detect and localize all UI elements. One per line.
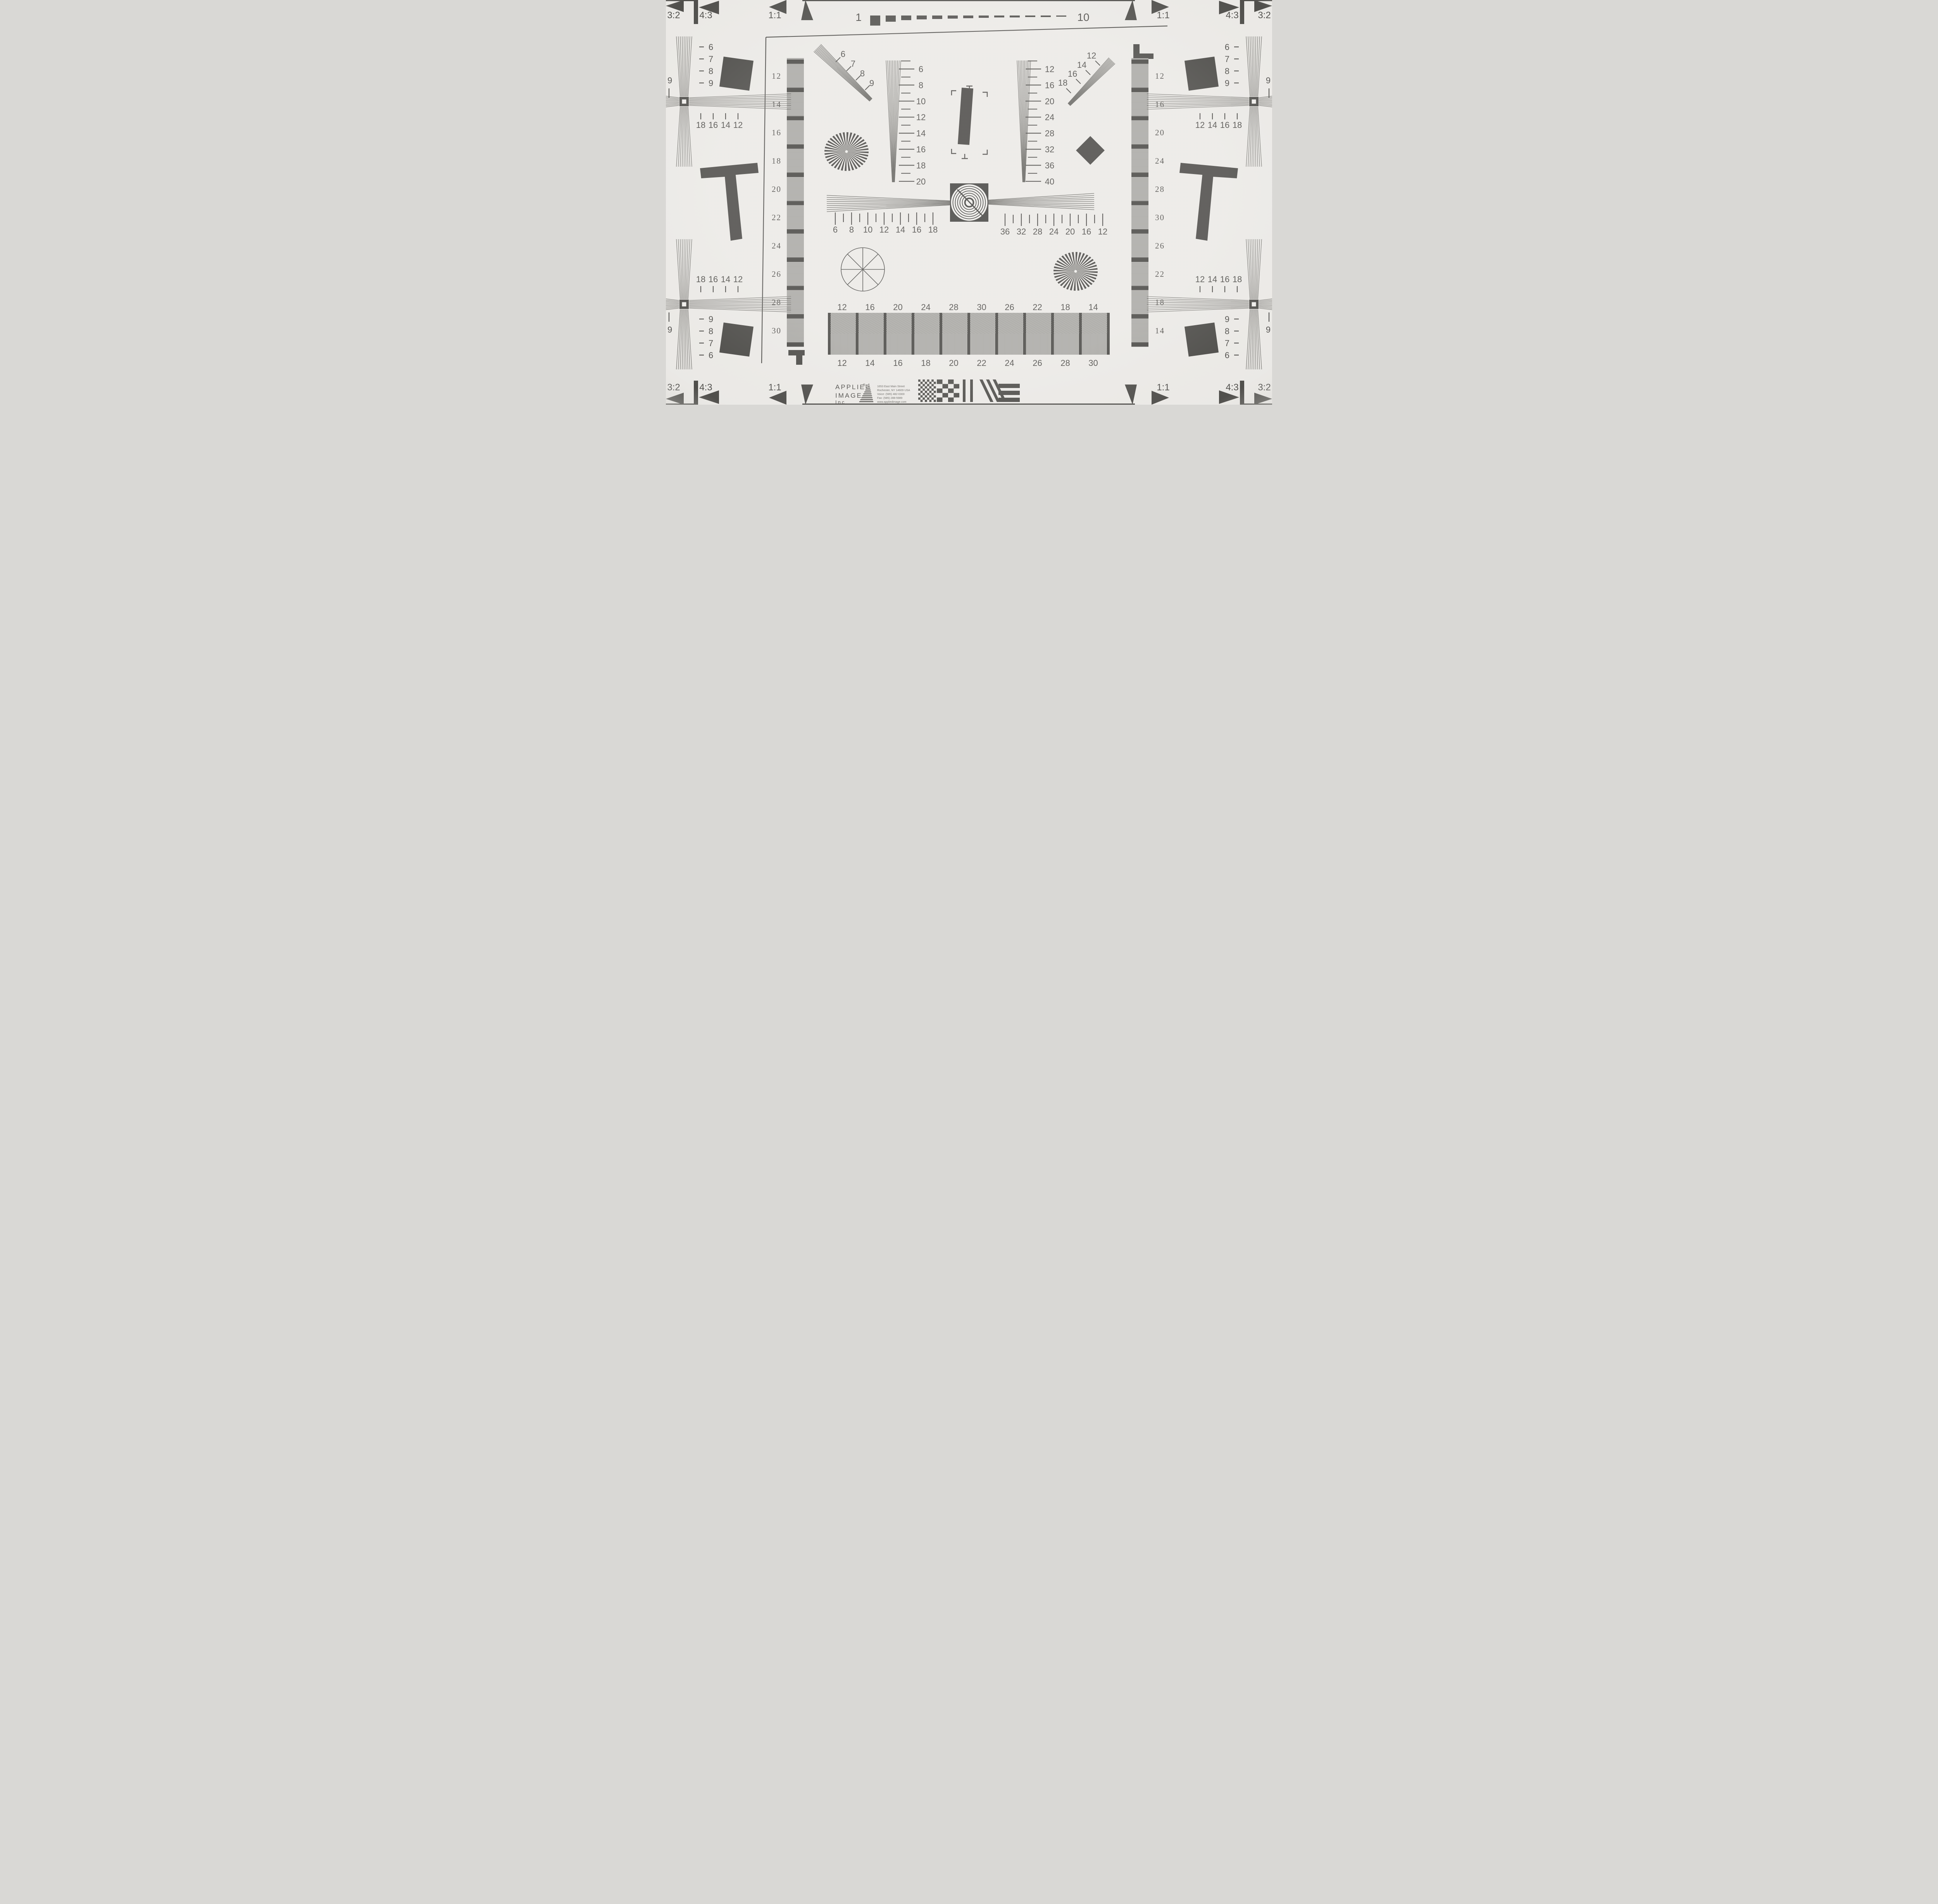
gray-bar-separator bbox=[1131, 343, 1148, 347]
flag-mark bbox=[1133, 44, 1140, 59]
gray-bar-label: 16 bbox=[1155, 100, 1165, 109]
fine-checkerboard-cell bbox=[929, 395, 932, 398]
bottom-bar-separator bbox=[995, 313, 998, 355]
fine-checkerboard-cell bbox=[929, 391, 932, 393]
cross-wedge-label: 9 bbox=[1225, 78, 1229, 88]
top-scale-block bbox=[932, 16, 942, 19]
aspect-ratio-label: 3:2 bbox=[667, 10, 680, 21]
fine-checkerboard-cell bbox=[925, 391, 927, 393]
coarse-checkerboard-cell bbox=[937, 388, 943, 393]
fine-checkerboard-cell bbox=[929, 400, 932, 402]
fine-checkerboard-cell bbox=[918, 384, 921, 386]
top-scale-block bbox=[1010, 16, 1020, 17]
bottom-bar-separator bbox=[967, 313, 970, 355]
cross-tick-label: 16 bbox=[709, 274, 718, 284]
bottom-bar-bottom-label: 24 bbox=[1005, 358, 1014, 368]
center-scale-label: 12 bbox=[1098, 227, 1107, 236]
diagonal-wedge-label: 9 bbox=[869, 78, 874, 88]
top-edge-line bbox=[802, 0, 1135, 1]
fine-checkerboard-cell bbox=[925, 395, 927, 398]
gray-bar-label: 26 bbox=[772, 269, 781, 279]
aspect-ratio-label: 3:2 bbox=[667, 382, 680, 393]
gray-bar-separator bbox=[1131, 229, 1148, 234]
top-edge-line bbox=[1243, 0, 1272, 1]
coarse-checkerboard-cell bbox=[954, 384, 960, 389]
gray-bar-label: 22 bbox=[1155, 269, 1165, 279]
ruler-label: 36 bbox=[1045, 160, 1054, 170]
diagonal-wedge-label: 14 bbox=[1077, 60, 1086, 70]
cross-tick-label: 12 bbox=[733, 120, 743, 130]
bottom-edge-line bbox=[666, 404, 694, 405]
address-line: Rochester, NY 14609 USA bbox=[877, 388, 910, 392]
top-scale-start-label: 1 bbox=[855, 11, 862, 23]
ruler-label: 28 bbox=[1045, 129, 1054, 138]
fine-checkerboard-cell bbox=[918, 379, 921, 382]
aspect-ratio-label: 1:1 bbox=[768, 10, 781, 21]
gray-bar-separator bbox=[787, 229, 804, 234]
bottom-bar-bottom-label: 18 bbox=[921, 358, 930, 368]
horizontal-bar-pattern bbox=[998, 384, 1020, 388]
gray-bar-separator bbox=[787, 88, 804, 92]
diagonal-wedge-label: 12 bbox=[1087, 51, 1096, 60]
gray-bar-separator bbox=[1131, 258, 1148, 262]
fine-checkerboard-cell bbox=[918, 393, 921, 395]
gray-bar-label: 12 bbox=[1155, 71, 1165, 81]
coarse-checkerboard-cell bbox=[943, 384, 948, 389]
bottom-bar-bottom-label: 16 bbox=[893, 358, 902, 368]
coarse-checkerboard-cell bbox=[937, 379, 943, 384]
coarse-checkerboard-cell bbox=[948, 397, 954, 402]
center-scale-label: 14 bbox=[896, 225, 905, 235]
aspect-ratio-label: 4:3 bbox=[699, 10, 712, 21]
fine-checkerboard-cell bbox=[927, 379, 929, 382]
flag-mark bbox=[796, 350, 802, 365]
bottom-bar-separator bbox=[912, 313, 914, 355]
top-scale-block bbox=[886, 16, 896, 22]
bottom-bar-separator bbox=[1107, 313, 1110, 355]
fine-checkerboard-cell bbox=[925, 382, 927, 384]
fine-checkerboard-cell bbox=[934, 386, 936, 388]
fine-checkerboard-cell bbox=[931, 388, 934, 391]
gray-bar-label: 28 bbox=[1155, 185, 1165, 194]
center-scale-label: 20 bbox=[1066, 227, 1075, 236]
top-scale-block bbox=[901, 16, 911, 20]
bottom-bar-top-label: 26 bbox=[1005, 302, 1014, 312]
bottom-bar-top-label: 18 bbox=[1060, 302, 1070, 312]
black-square bbox=[1185, 57, 1219, 91]
cross-wedge-label: 7 bbox=[709, 54, 713, 64]
coarse-checkerboard-cell bbox=[954, 393, 960, 398]
logo-word-image: IMAGE bbox=[835, 392, 862, 399]
fine-checkerboard-cell bbox=[921, 395, 923, 398]
corner-bar-icon bbox=[1240, 0, 1244, 24]
center-scale-label: 16 bbox=[912, 225, 921, 235]
registered-icon: ® bbox=[863, 383, 866, 387]
gray-bar-label: 24 bbox=[1155, 156, 1165, 166]
bottom-bar-bottom-label: 30 bbox=[1088, 358, 1098, 368]
corner-bar-icon bbox=[694, 0, 698, 24]
cross-wedge-label: 9 bbox=[709, 78, 713, 88]
aspect-ratio-label: 1:1 bbox=[768, 382, 781, 393]
cross-wedge-label: 6 bbox=[1225, 350, 1229, 360]
horizontal-bar-pattern bbox=[998, 398, 1020, 402]
ruler-label: 20 bbox=[1045, 97, 1054, 106]
gray-bar-label: 12 bbox=[772, 71, 781, 81]
bottom-bar-bottom-label: 12 bbox=[837, 358, 847, 368]
bottom-bar-bottom-label: 22 bbox=[977, 358, 986, 368]
bottom-edge-line bbox=[1243, 404, 1272, 405]
fine-checkerboard-cell bbox=[934, 391, 936, 393]
gray-bar-label: 24 bbox=[772, 241, 781, 250]
aspect-ratio-label: 3:2 bbox=[1258, 382, 1271, 393]
diagonal-wedge-label: 6 bbox=[841, 49, 845, 59]
fine-checkerboard-cell bbox=[925, 400, 927, 402]
address-line: Voice: (585) 482-0300 bbox=[877, 392, 905, 396]
fine-checkerboard-cell bbox=[921, 400, 923, 402]
center-bullseye bbox=[950, 183, 988, 222]
gray-bar-label: 20 bbox=[772, 185, 781, 194]
ruler-label: 24 bbox=[1045, 112, 1054, 122]
center-scale-label: 16 bbox=[1082, 227, 1091, 236]
coarse-checkerboard-cell bbox=[948, 388, 954, 393]
bottom-bar-top-label: 24 bbox=[921, 302, 930, 312]
top-scale-block bbox=[1056, 16, 1066, 17]
bottom-bar-separator bbox=[884, 313, 886, 355]
gray-bar-separator bbox=[787, 60, 804, 64]
diagonal-wedge-label: 18 bbox=[1058, 78, 1067, 88]
cross-center-window bbox=[682, 302, 686, 307]
cross-wedge-label: 8 bbox=[1225, 326, 1229, 336]
black-square bbox=[719, 323, 753, 357]
gray-bar-separator bbox=[787, 314, 804, 319]
corner-bar-icon bbox=[1240, 381, 1244, 405]
cross-wedge-label: 9 bbox=[709, 314, 713, 324]
cross-center-window bbox=[1252, 100, 1256, 104]
cross-tick-label: 16 bbox=[709, 120, 718, 130]
ruler-label: 10 bbox=[916, 97, 926, 106]
horizontal-bar-pattern bbox=[998, 391, 1020, 395]
gray-bar-separator bbox=[787, 116, 804, 121]
fine-checkerboard-cell bbox=[921, 391, 923, 393]
gray-bar-separator bbox=[1131, 314, 1148, 319]
fine-checkerboard-cell bbox=[927, 384, 929, 386]
top-scale-block bbox=[870, 16, 880, 26]
bottom-bar-top-label: 28 bbox=[949, 302, 958, 312]
gray-bar-separator bbox=[787, 173, 804, 177]
address-line: www.appliedimage.com bbox=[877, 400, 907, 404]
page: APPLIED ® IMAGE Inc 1653 East Main Stree… bbox=[666, 0, 1272, 405]
center-scale-label: 8 bbox=[849, 225, 854, 235]
edge-cut-label: 9 bbox=[667, 325, 672, 335]
gray-bar-label: 30 bbox=[1155, 213, 1165, 222]
bottom-bar-separator bbox=[1023, 313, 1026, 355]
center-scale-label: 28 bbox=[1033, 227, 1042, 236]
center-scale-label: 6 bbox=[833, 225, 838, 235]
fine-checkerboard-cell bbox=[921, 382, 923, 384]
gray-bar-separator bbox=[1131, 88, 1148, 92]
gray-bar-separator bbox=[1131, 201, 1148, 205]
coarse-checkerboard-cell bbox=[937, 397, 943, 402]
bottom-bar-bottom-label: 26 bbox=[1033, 358, 1042, 368]
fine-checkerboard-cell bbox=[925, 386, 927, 388]
gray-bar-separator bbox=[1131, 286, 1148, 290]
gray-bar-separator bbox=[1131, 145, 1148, 149]
ruler-label: 20 bbox=[916, 177, 926, 186]
gray-bar-label: 18 bbox=[772, 156, 781, 166]
top-scale-end-label: 10 bbox=[1077, 11, 1089, 23]
cross-tick-label: 14 bbox=[721, 274, 730, 284]
fine-checkerboard-cell bbox=[918, 388, 921, 391]
center-scale-label: 10 bbox=[863, 225, 872, 235]
cross-wedge-label: 6 bbox=[709, 42, 713, 52]
gray-bar-label: 14 bbox=[772, 100, 781, 109]
center-scale-label: 36 bbox=[1000, 227, 1010, 236]
cross-tick-label: 14 bbox=[721, 120, 730, 130]
bottom-bar-bottom-label: 14 bbox=[865, 358, 874, 368]
bottom-bar-separator bbox=[940, 313, 942, 355]
address-line: Fax: (585) 288-5989 bbox=[877, 396, 902, 400]
aspect-ratio-label: 3:2 bbox=[1258, 10, 1271, 21]
bottom-bar-bottom-label: 28 bbox=[1060, 358, 1070, 368]
cross-wedge-label: 9 bbox=[1225, 314, 1229, 324]
aspect-ratio-label: 1:1 bbox=[1157, 382, 1169, 393]
diagonal-wedge-label: 16 bbox=[1068, 69, 1077, 79]
gray-bar-label: 20 bbox=[1155, 128, 1165, 137]
gray-bar-separator bbox=[787, 286, 804, 290]
gray-bar-label: 14 bbox=[1155, 326, 1165, 335]
fine-checkerboard-cell bbox=[927, 393, 929, 395]
fine-checkerboard-cell bbox=[931, 393, 934, 395]
ruler-label: 32 bbox=[1045, 145, 1054, 154]
fine-checkerboard-cell bbox=[929, 386, 932, 388]
fine-checkerboard-cell bbox=[929, 382, 932, 384]
cross-tick-label: 12 bbox=[1195, 274, 1205, 284]
top-scale-block bbox=[948, 16, 958, 19]
bottom-bar-bottom-label: 20 bbox=[949, 358, 958, 368]
gray-bar-separator bbox=[787, 145, 804, 149]
bottom-bar-top-label: 12 bbox=[837, 302, 847, 312]
gray-bar-separator bbox=[1131, 173, 1148, 177]
cross-center-window bbox=[682, 100, 686, 104]
gray-bar-separator bbox=[787, 258, 804, 262]
cross-tick-label: 16 bbox=[1220, 274, 1229, 284]
bottom-bar-separator bbox=[828, 313, 831, 355]
ruler-label: 16 bbox=[916, 145, 926, 154]
fine-checkerboard-cell bbox=[934, 395, 936, 398]
aspect-ratio-label: 4:3 bbox=[1226, 382, 1238, 393]
vertical-bar-pattern bbox=[963, 379, 966, 402]
coarse-checkerboard-cell bbox=[943, 393, 948, 398]
cross-tick-label: 16 bbox=[1220, 120, 1229, 130]
center-scale-label: 18 bbox=[928, 225, 938, 235]
black-square bbox=[719, 57, 753, 91]
cross-tick-label: 18 bbox=[696, 120, 705, 130]
coarse-checkerboard-cell bbox=[948, 379, 954, 384]
cross-wedge-label: 8 bbox=[1225, 66, 1229, 76]
starburst-center-dot bbox=[845, 150, 848, 153]
bottom-bar-top-label: 14 bbox=[1088, 302, 1098, 312]
ruler-label: 12 bbox=[916, 112, 926, 122]
ruler-label: 12 bbox=[1045, 64, 1054, 74]
bottom-bar-top-label: 20 bbox=[893, 302, 902, 312]
bottom-bar-separator bbox=[856, 313, 859, 355]
fine-checkerboard-cell bbox=[922, 379, 925, 382]
ruler-label: 8 bbox=[919, 80, 923, 90]
top-scale-block bbox=[1041, 16, 1051, 17]
bottom-bar-top-label: 22 bbox=[1033, 302, 1042, 312]
ruler-label: 16 bbox=[1045, 80, 1054, 90]
gray-bar-separator bbox=[787, 343, 804, 347]
gray-bar-label: 30 bbox=[772, 326, 781, 335]
cross-wedge-label: 7 bbox=[1225, 338, 1229, 348]
gray-bar-separator bbox=[787, 201, 804, 205]
cross-tick-label: 12 bbox=[733, 274, 743, 284]
cross-tick-label: 12 bbox=[1195, 120, 1205, 130]
aspect-ratio-label: 4:3 bbox=[699, 382, 712, 393]
gray-bar-label: 26 bbox=[1155, 241, 1165, 250]
ruler-label: 40 bbox=[1045, 177, 1054, 186]
fine-checkerboard-cell bbox=[922, 393, 925, 395]
fine-checkerboard-cell bbox=[934, 382, 936, 384]
gray-bar-label: 16 bbox=[772, 128, 781, 137]
fine-checkerboard-cell bbox=[931, 379, 934, 382]
cross-wedge-label: 6 bbox=[709, 350, 713, 360]
cross-wedge-label: 7 bbox=[1225, 54, 1229, 64]
cross-center-window bbox=[1252, 302, 1256, 307]
cross-tick-label: 14 bbox=[1208, 274, 1217, 284]
cross-wedge-label: 6 bbox=[1225, 42, 1229, 52]
cross-tick-label: 14 bbox=[1208, 120, 1217, 130]
center-scale-label: 32 bbox=[1017, 227, 1026, 236]
fine-checkerboard-cell bbox=[922, 388, 925, 391]
top-scale-block bbox=[994, 16, 1004, 17]
cross-tick-label: 18 bbox=[1233, 120, 1242, 130]
ruler-label: 6 bbox=[919, 64, 923, 74]
fine-checkerboard-cell bbox=[921, 386, 923, 388]
fine-checkerboard-cell bbox=[934, 400, 936, 402]
gray-bar-label: 22 bbox=[772, 213, 781, 222]
bottom-bar-separator bbox=[1079, 313, 1082, 355]
fine-checkerboard-cell bbox=[918, 397, 921, 400]
fine-checkerboard-cell bbox=[922, 397, 925, 400]
cross-tick-label: 18 bbox=[696, 274, 705, 284]
vertical-bar-pattern bbox=[970, 379, 973, 402]
starburst-center-dot bbox=[1074, 270, 1077, 273]
ruler-label: 14 bbox=[916, 129, 926, 138]
sector-circle bbox=[841, 248, 885, 291]
aspect-ratio-label: 1:1 bbox=[1157, 10, 1169, 21]
bottom-edge-line bbox=[802, 404, 1135, 405]
bottom-bar-top-label: 16 bbox=[865, 302, 874, 312]
center-scale-label: 12 bbox=[879, 225, 889, 235]
bottom-bar-top-label: 30 bbox=[977, 302, 986, 312]
top-edge-line bbox=[666, 0, 694, 1]
address-line: 1653 East Main Street bbox=[877, 385, 905, 388]
cross-wedge-label: 8 bbox=[709, 326, 713, 336]
fine-checkerboard-cell bbox=[931, 384, 934, 386]
ruler-label: 18 bbox=[916, 160, 926, 170]
diagonal-wedge-label: 8 bbox=[860, 69, 865, 78]
fine-checkerboard-cell bbox=[931, 397, 934, 400]
gray-bar-separator bbox=[1131, 116, 1148, 121]
iso12233-test-chart: APPLIED ® IMAGE Inc 1653 East Main Stree… bbox=[666, 0, 1272, 405]
cross-wedge-label: 7 bbox=[709, 338, 713, 348]
aspect-ratio-label: 4:3 bbox=[1226, 10, 1238, 21]
top-scale-block bbox=[917, 16, 927, 19]
fine-checkerboard-cell bbox=[927, 397, 929, 400]
bottom-bar-separator bbox=[1051, 313, 1054, 355]
edge-cut-label: 9 bbox=[1266, 325, 1271, 335]
cross-wedge-label: 8 bbox=[709, 66, 713, 76]
fine-checkerboard-cell bbox=[927, 388, 929, 391]
black-square bbox=[1185, 323, 1219, 357]
cross-tick-label: 18 bbox=[1233, 274, 1242, 284]
edge-cut-label: 9 bbox=[667, 76, 672, 85]
corner-bar-icon bbox=[694, 381, 698, 405]
edge-cut-label: 9 bbox=[1266, 76, 1271, 85]
center-scale-label: 24 bbox=[1049, 227, 1059, 236]
top-scale-block bbox=[963, 16, 973, 18]
fine-checkerboard-cell bbox=[922, 384, 925, 386]
logo-word-inc: Inc bbox=[835, 399, 845, 405]
top-scale-block bbox=[1025, 16, 1035, 17]
top-scale-block bbox=[979, 16, 989, 18]
gray-bar-separator bbox=[1131, 60, 1148, 64]
diagonal-wedge-label: 7 bbox=[851, 59, 855, 69]
